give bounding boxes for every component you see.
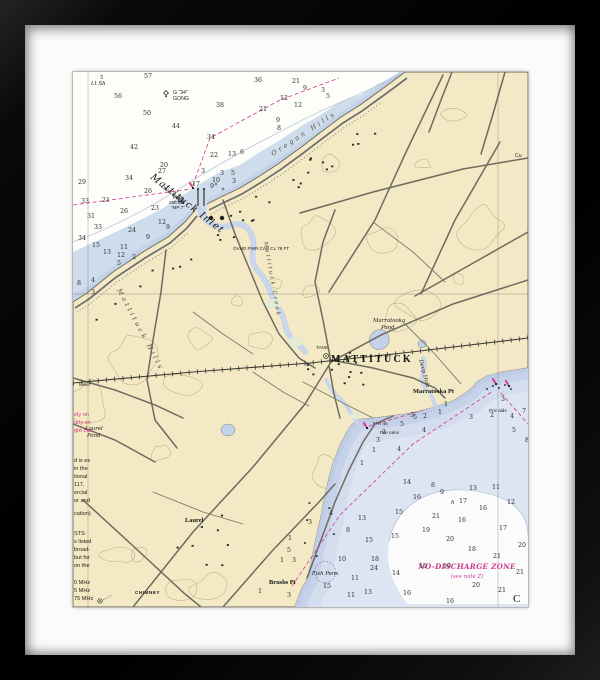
- sounding-value: 50: [143, 110, 151, 117]
- sounding-value: 19: [443, 563, 451, 570]
- nautical-chart-print: Mattituck Inlet(see inset)G “34”GONG5Lt …: [73, 72, 528, 607]
- building: [139, 286, 141, 288]
- sounding-value: 12: [507, 499, 515, 506]
- sounding-value: 1: [280, 557, 284, 564]
- sounding-value: 2: [423, 413, 427, 420]
- sounding-value: 11: [351, 575, 359, 582]
- sounding-value: 18: [468, 546, 476, 553]
- jetty-dot: [197, 188, 199, 190]
- building: [344, 382, 346, 384]
- building: [308, 502, 310, 504]
- sounding-value: 21: [292, 78, 300, 85]
- map-label: Brushs Pt: [269, 579, 297, 586]
- sounding-value: 34: [125, 175, 133, 182]
- sounding-value: 21: [498, 587, 506, 594]
- building: [298, 186, 300, 188]
- sounding-value: 56: [114, 93, 122, 100]
- sounding-value: 14: [403, 479, 411, 486]
- sounding-value: 3: [287, 592, 291, 599]
- sounding-value: 4: [91, 277, 95, 284]
- building: [310, 158, 312, 160]
- building: [360, 372, 362, 374]
- map-label: Marratooka: [372, 318, 405, 324]
- map-label: 5 MHz: [74, 588, 90, 594]
- sounding-value: 13: [103, 249, 111, 256]
- sounding-value: 1: [372, 447, 376, 454]
- building: [331, 369, 333, 371]
- sounding-value: 3: [220, 170, 224, 177]
- map-label: Cu: [515, 153, 522, 159]
- sounding-value: 14: [392, 570, 400, 577]
- building: [316, 555, 318, 557]
- building: [221, 564, 223, 566]
- sounding-value: 1: [444, 401, 448, 408]
- map-label: Lt Sh: [90, 81, 106, 87]
- building: [252, 219, 254, 221]
- sounding-value: 42: [130, 144, 138, 151]
- map-label: Pond: [380, 325, 395, 331]
- sounding-value: 3: [321, 87, 325, 94]
- sounding-value: 16: [413, 494, 421, 501]
- no-discharge-zone-area: [388, 490, 528, 604]
- building: [348, 376, 350, 378]
- building: [268, 201, 270, 203]
- map-label: on the: [74, 563, 90, 569]
- sounding-value: 13: [364, 589, 372, 596]
- building: [221, 515, 223, 517]
- building: [356, 133, 358, 135]
- sounding-value: 29: [78, 179, 86, 186]
- map-label: cation): [74, 511, 91, 517]
- building: [349, 371, 351, 373]
- pile-dot: [498, 387, 500, 389]
- pile-dot: [492, 385, 494, 387]
- sounding-value: 1: [288, 535, 292, 542]
- building: [233, 236, 235, 238]
- pile-dot: [510, 388, 512, 390]
- sounding-value: 3: [91, 289, 95, 296]
- map-label: C: [513, 593, 520, 605]
- sounding-value: 4: [510, 413, 514, 420]
- sounding-value: 16: [446, 598, 454, 605]
- sounding-value: 34: [207, 134, 215, 141]
- pile-dot: [504, 384, 506, 386]
- building: [307, 172, 309, 174]
- sounding-value: 21: [259, 106, 267, 113]
- sounding-value: 17: [499, 525, 507, 532]
- sounding-value: 21: [493, 553, 501, 560]
- sounding-value: 3: [308, 519, 312, 526]
- map-label: ght List: [74, 428, 92, 434]
- map-label: 117,: [74, 482, 85, 488]
- sounding-value: 12: [117, 252, 125, 259]
- sounding-value: 4: [422, 427, 426, 434]
- chimney-dot: [99, 600, 101, 602]
- sounding-value: 4: [329, 510, 333, 517]
- sounding-value: 5: [231, 170, 235, 177]
- sounding-value: 11: [120, 244, 128, 251]
- sounding-value: 17: [459, 498, 467, 505]
- building: [300, 183, 302, 185]
- sounding-value: 33: [94, 224, 102, 231]
- sounding-value: 4: [397, 446, 401, 453]
- sounding-value: 23: [151, 205, 159, 212]
- sounding-value: 3: [292, 557, 296, 564]
- map-label: ercial: [74, 490, 87, 496]
- map-label: MATTITUCK: [331, 354, 413, 365]
- sounding-value: 18: [371, 556, 379, 563]
- building: [326, 169, 328, 171]
- building: [177, 547, 179, 549]
- map-label: NO-DISCHARGE ZONE: [417, 562, 516, 571]
- building: [362, 384, 364, 386]
- map-label: STS: [74, 531, 85, 537]
- sounding-value: 38: [216, 102, 224, 109]
- map-label: (see note Z): [451, 573, 484, 580]
- sounding-value: 13: [469, 485, 477, 492]
- sounding-value: 7: [522, 408, 526, 415]
- pile-dot: [486, 388, 488, 390]
- building: [230, 215, 232, 217]
- light-position-dot: [495, 383, 497, 385]
- sounding-value: 5: [287, 547, 291, 554]
- map-label: Laurel: [185, 517, 204, 524]
- chart-canvas: Mattituck Inlet(see inset)G “34”GONG5Lt …: [73, 72, 528, 607]
- sounding-value: 5: [326, 93, 330, 100]
- sounding-value: 3: [469, 414, 473, 421]
- building: [201, 526, 203, 528]
- map-label: broad-: [74, 547, 90, 553]
- sounding-value: 13: [358, 515, 366, 522]
- sounding-value: 24: [128, 227, 136, 234]
- building: [328, 507, 330, 509]
- sounding-value: 12: [158, 219, 166, 226]
- building: [352, 144, 354, 146]
- map-label: s listed: [74, 539, 91, 545]
- sounding-value: 12: [280, 95, 288, 102]
- sounding-value: 2: [132, 254, 136, 261]
- map-label: ely on: [74, 412, 89, 418]
- building: [242, 219, 244, 221]
- sounding-value: 9: [276, 117, 280, 124]
- sounding-value: 8: [525, 437, 528, 444]
- sounding-value: 13: [228, 151, 236, 158]
- buoy-dot: [165, 96, 167, 98]
- building: [190, 259, 192, 261]
- map-label: 0 MHz: [74, 580, 90, 586]
- map-label: but for: [74, 555, 90, 561]
- sounding-value: 21: [102, 197, 110, 204]
- building: [374, 133, 376, 135]
- sounding-value: 5: [117, 260, 121, 267]
- sounding-value: 5: [413, 414, 417, 421]
- map-label: 75 MHz: [74, 596, 93, 602]
- light-position-dot: [508, 385, 510, 387]
- map-label: GONG: [173, 96, 189, 102]
- building: [239, 211, 241, 213]
- sounding-value: 33: [81, 198, 89, 205]
- building: [217, 529, 219, 531]
- sounding-value: 3: [376, 437, 380, 444]
- sounding-value: 9: [440, 489, 444, 496]
- building: [114, 303, 116, 305]
- building: [206, 564, 208, 566]
- sounding-value: 15: [365, 537, 373, 544]
- building: [292, 179, 294, 181]
- sounding-value: 2: [382, 429, 386, 436]
- sounding-value: 26: [120, 208, 128, 215]
- sounding-value: 20: [446, 536, 454, 543]
- sounding-value: 15: [92, 242, 100, 249]
- map-label: tower: [79, 382, 91, 387]
- sounding-value: 8: [346, 527, 350, 534]
- building: [96, 319, 98, 321]
- building: [152, 270, 154, 272]
- sounding-value: 17: [192, 181, 200, 188]
- sounding-value: 15: [395, 509, 403, 516]
- sounding-value: 12: [294, 102, 302, 109]
- jetty-dot: [203, 188, 205, 190]
- map-label: or and: [74, 498, 90, 504]
- sounding-value: 5: [512, 427, 516, 434]
- map-label: h: [451, 500, 454, 506]
- building: [322, 162, 324, 164]
- laurel-pond: [221, 424, 235, 436]
- sounding-value: 19: [422, 527, 430, 534]
- building: [227, 544, 229, 546]
- map-label: arly on: [74, 420, 91, 426]
- sounding-value: 11: [492, 484, 500, 491]
- map-label: CHIMNEY: [135, 590, 160, 596]
- sounding-value: 15: [391, 533, 399, 540]
- building: [219, 239, 221, 241]
- tank-icon: [220, 216, 224, 220]
- sounding-value: 44: [172, 123, 180, 130]
- sounding-value: 27: [158, 168, 166, 175]
- building: [333, 533, 335, 535]
- light-position-dot: [366, 427, 368, 429]
- sounding-value: 15: [323, 583, 331, 590]
- map-label: OVHD PWR CAB CL 78 FT: [233, 246, 289, 251]
- map-label: in the: [74, 466, 88, 472]
- map-label: tional: [74, 474, 87, 480]
- sounding-value: 21: [516, 569, 524, 576]
- sounding-value: 31: [87, 213, 95, 220]
- sounding-value: 20: [518, 542, 526, 549]
- building: [179, 266, 181, 268]
- sounding-value: 20: [472, 582, 480, 589]
- sounding-value: 11: [347, 592, 355, 599]
- sounding-value: 21: [432, 513, 440, 520]
- sounding-value: 22: [210, 152, 218, 159]
- sounding-value: 1: [258, 588, 262, 595]
- sounding-value: 9: [210, 183, 214, 190]
- sounding-value: 6: [240, 149, 244, 156]
- map-label: d is es: [74, 458, 90, 464]
- sounding-value: 3: [232, 178, 236, 185]
- map-label: Fish Pens: [311, 571, 338, 577]
- map-label: TANK: [316, 345, 329, 350]
- sounding-value: 8: [277, 125, 281, 132]
- sounding-value: 5: [400, 421, 404, 428]
- sounding-value: 16: [458, 517, 466, 524]
- building: [331, 166, 333, 168]
- sounding-value: 9: [303, 85, 307, 92]
- sounding-value: 34: [78, 235, 86, 242]
- building: [307, 364, 309, 366]
- building: [172, 268, 174, 270]
- sounding-value: 8: [77, 280, 81, 287]
- water-tower-dot: [325, 355, 327, 357]
- sounding-value: 10: [338, 556, 346, 563]
- sounding-value: 16: [403, 590, 411, 597]
- sounding-value: 26: [144, 188, 152, 195]
- building: [357, 143, 359, 145]
- sounding-value: 1: [360, 460, 364, 467]
- sounding-value: 57: [144, 73, 152, 80]
- sounding-value: 16: [479, 505, 487, 512]
- sounding-value: 9: [166, 224, 170, 231]
- sounding-value: 16: [419, 563, 427, 570]
- map-label: Fl R 4s: [373, 421, 388, 426]
- sounding-value: 9: [146, 234, 150, 241]
- sounding-value: 2: [490, 412, 494, 419]
- building: [307, 368, 309, 370]
- sounding-value: 24: [370, 565, 378, 572]
- building: [192, 545, 194, 547]
- building: [255, 196, 257, 198]
- building: [312, 374, 314, 376]
- sounding-value: 1: [438, 409, 442, 416]
- map-label: Marratooka Pt: [413, 388, 455, 395]
- sounding-value: 36: [254, 77, 262, 84]
- sounding-value: 8: [431, 482, 435, 489]
- sounding-value: 21: [177, 197, 185, 204]
- sounding-value: 3: [201, 168, 205, 175]
- map-label: “MP 7”: [171, 205, 185, 210]
- sounding-value: 3: [501, 396, 505, 403]
- building: [304, 542, 306, 544]
